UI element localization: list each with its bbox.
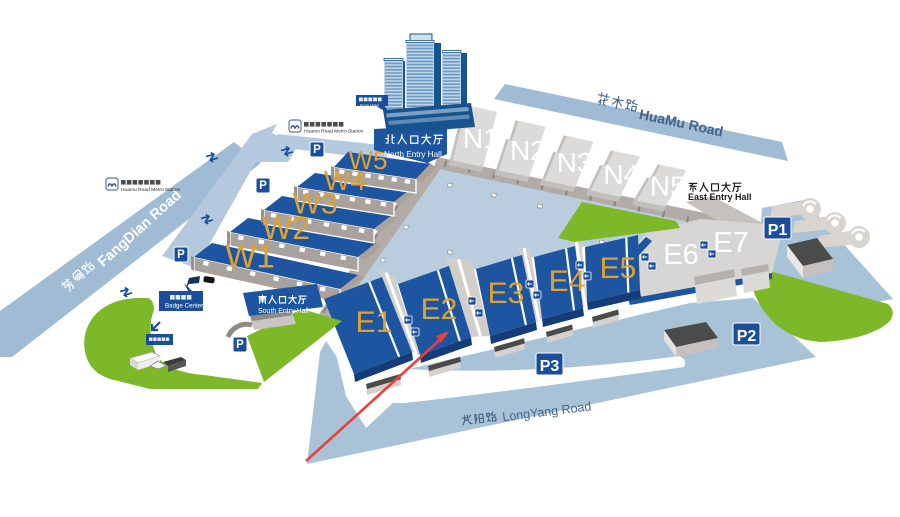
svg-text:E1: E1 <box>356 306 393 339</box>
svg-text:East Entry Hall: East Entry Hall <box>688 192 752 202</box>
svg-text:N2: N2 <box>510 135 546 166</box>
svg-text:Badge Center: Badge Center <box>165 303 203 310</box>
svg-text:E7: E7 <box>713 227 748 259</box>
svg-text:P: P <box>259 180 267 192</box>
svg-text:P: P <box>236 339 244 351</box>
svg-text:South Entry Hall: South Entry Hall <box>258 308 309 315</box>
svg-text:Kerry Hotel: Kerry Hotel <box>360 104 379 108</box>
svg-text:P3: P3 <box>540 358 560 375</box>
svg-text:P2: P2 <box>737 328 757 345</box>
svg-text:P: P <box>177 249 185 261</box>
svg-text:E5: E5 <box>600 252 637 285</box>
svg-text:P: P <box>313 144 321 156</box>
svg-text:North Entry Hall: North Entry Hall <box>384 150 442 159</box>
svg-text:N3: N3 <box>557 147 593 178</box>
svg-text:E6: E6 <box>663 239 698 271</box>
svg-text:Huamu Road Metro Station: Huamu Road Metro Station <box>121 187 181 193</box>
svg-text:E2: E2 <box>421 293 458 326</box>
svg-text:N4: N4 <box>603 159 639 190</box>
svg-text:P1: P1 <box>768 222 788 239</box>
svg-text:E4: E4 <box>549 265 586 298</box>
svg-text:E3: E3 <box>488 277 525 310</box>
svg-text:Huamu Road Metro Station: Huamu Road Metro Station <box>304 129 364 135</box>
svg-text:N5: N5 <box>650 171 686 202</box>
